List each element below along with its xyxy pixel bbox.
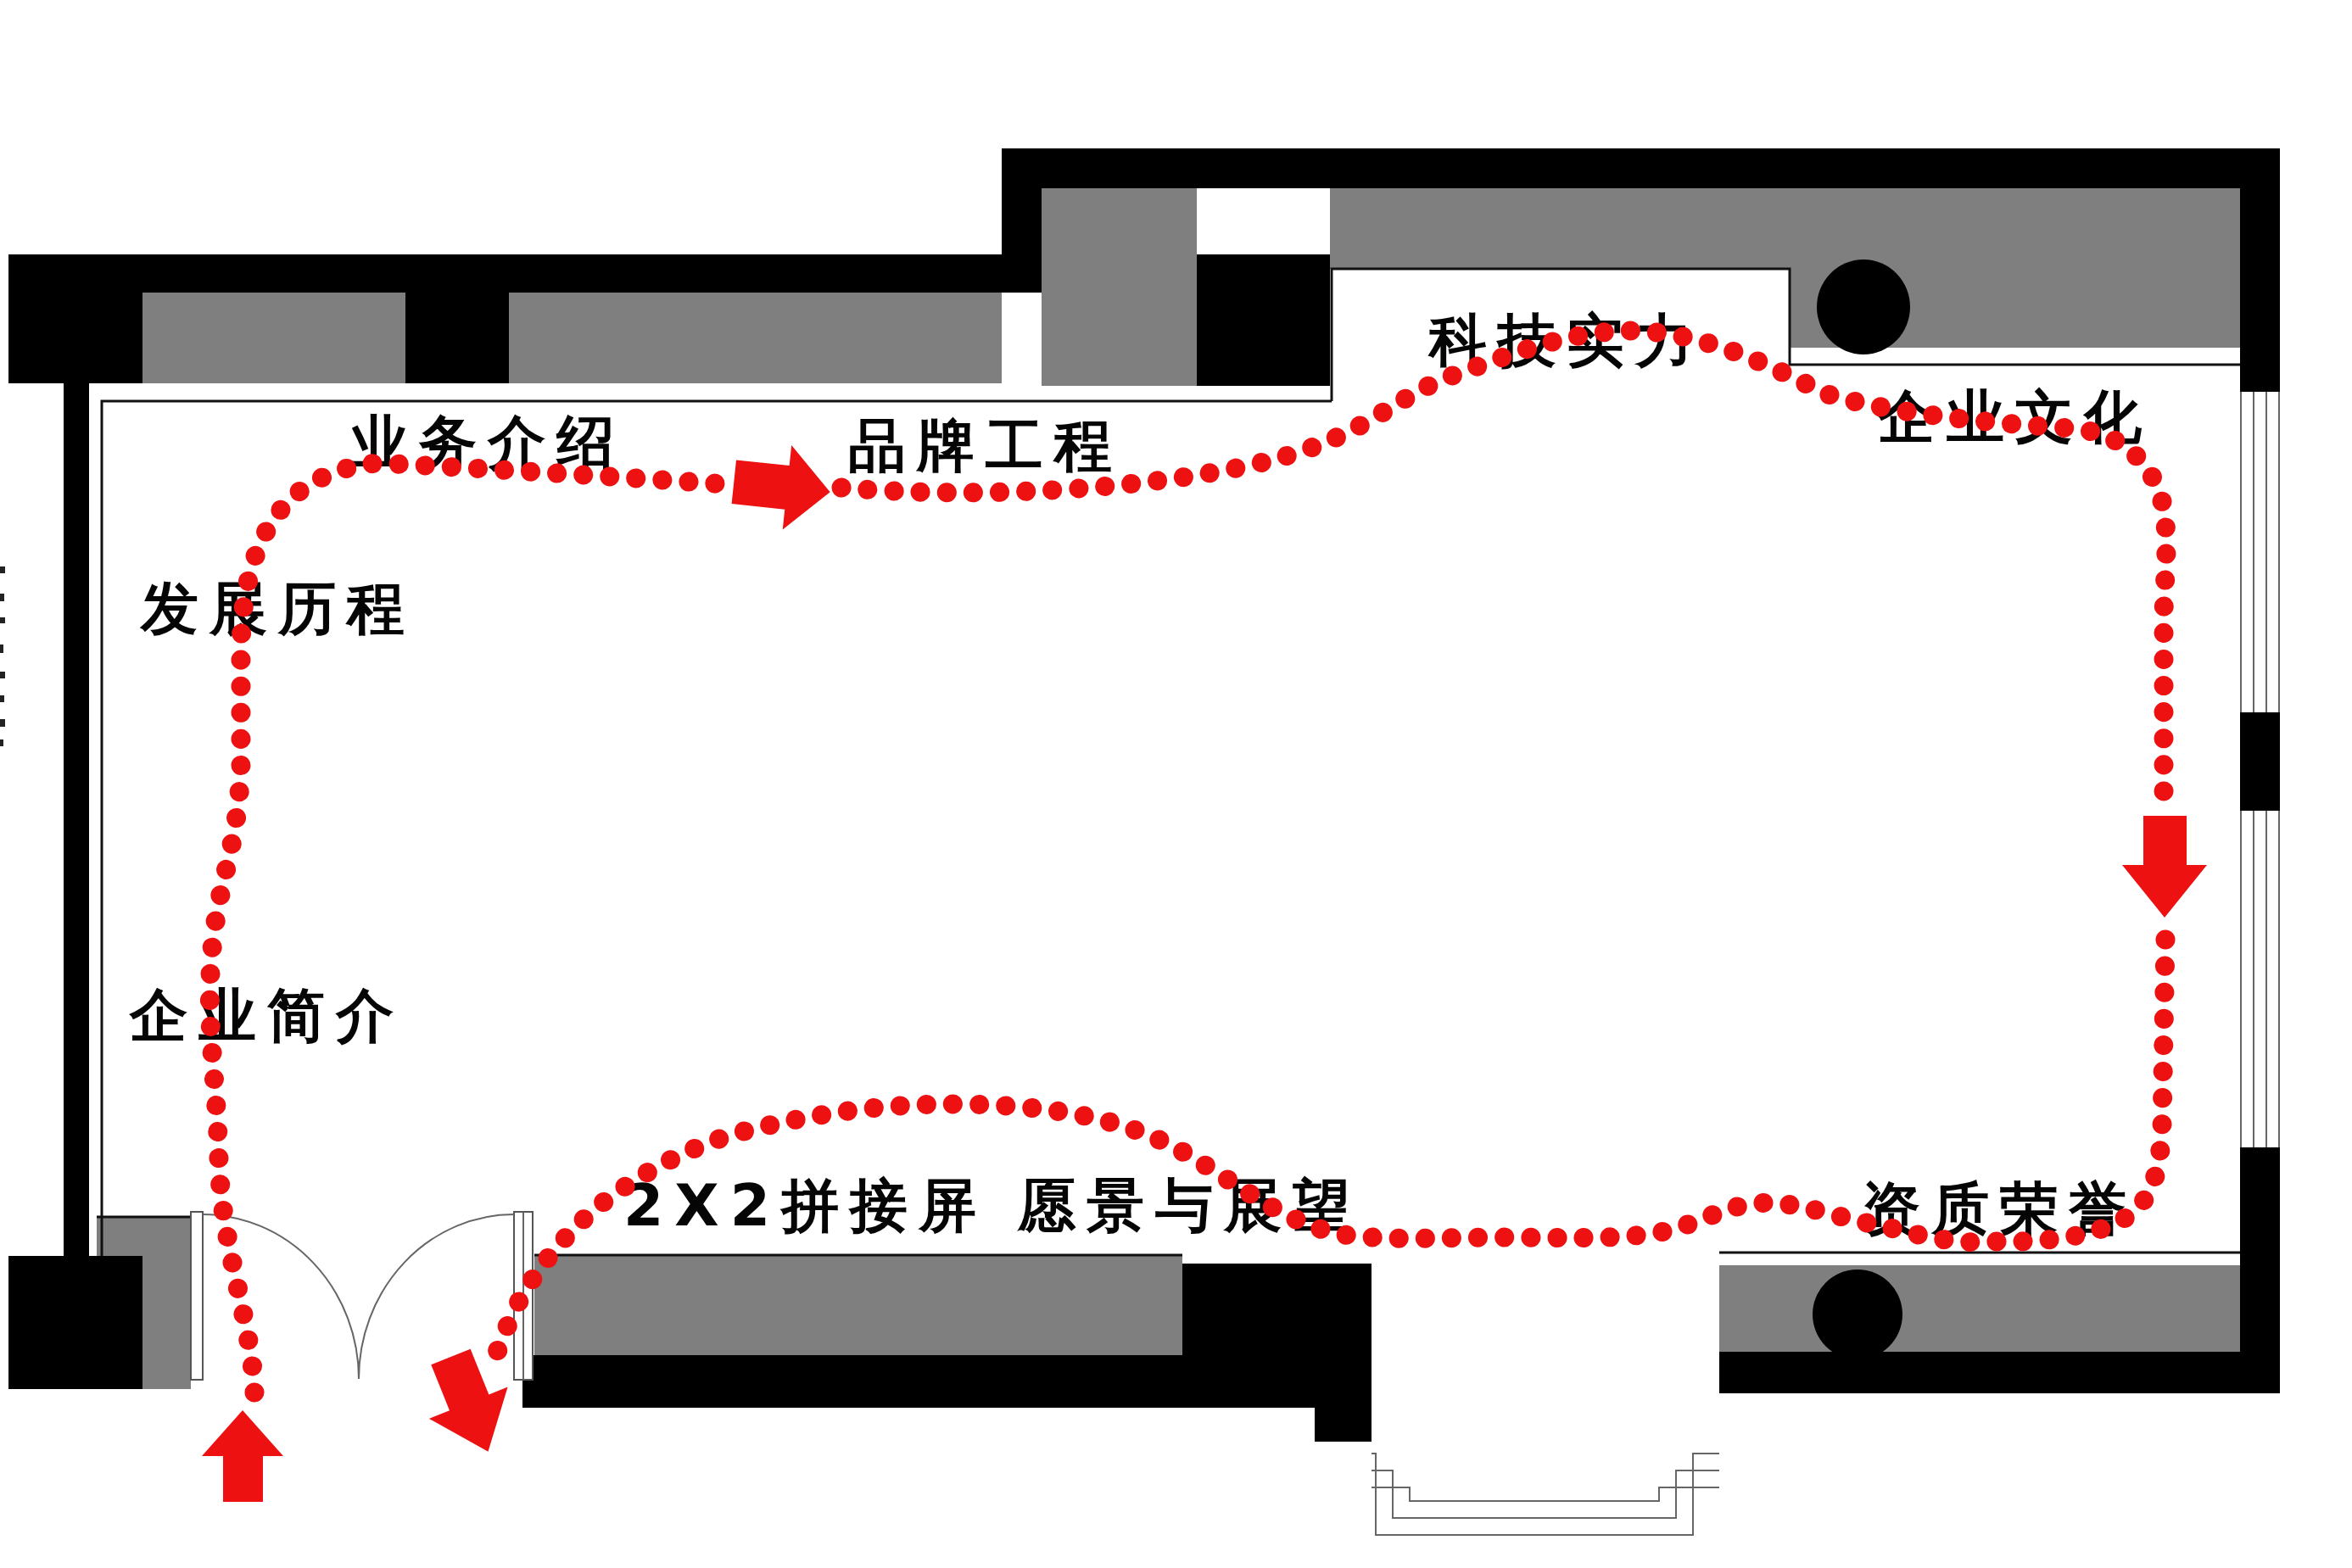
wall-top-right-band xyxy=(1002,148,2280,188)
window-band-lower xyxy=(2241,811,2279,1147)
door-leaf-left xyxy=(191,1212,203,1380)
display-panel-top-left-2 xyxy=(509,293,1002,383)
wall-top-left-band xyxy=(8,254,1042,293)
wall-top-divider-block xyxy=(405,254,509,383)
wall-bottom-left-corner-block xyxy=(8,1256,142,1389)
door-swing-arc-left xyxy=(203,1214,359,1379)
zone-label-business-intro: 业务介绍 xyxy=(350,412,625,473)
interior-boundary-left xyxy=(102,401,1332,1256)
wall-bottom-middle-band xyxy=(522,1355,1182,1408)
wall-bottom-step-block xyxy=(1315,1301,1372,1442)
door-swing-arc-right xyxy=(359,1214,514,1379)
display-panel-bottom-right xyxy=(1719,1265,2240,1352)
zone-label-development-history: 发展历程 xyxy=(141,578,416,639)
floor-plan-canvas: 业务介绍 品牌工程 科技实力 企业文化 发展历程 企业简介 2X2拼接屏 愿景与… xyxy=(0,0,2352,1568)
vestibule-recess xyxy=(1372,1454,1719,1535)
wall-alcove-divider-block xyxy=(1197,254,1330,386)
display-panel-above-alcove xyxy=(1330,188,2240,269)
display-panel-step xyxy=(1042,188,1197,386)
display-panel-bottom-middle xyxy=(534,1255,1182,1355)
window-band-upper xyxy=(2241,392,2279,712)
structural-column-top xyxy=(1817,259,1910,354)
zone-label-company-profile: 企业简介 xyxy=(130,985,405,1046)
zone-label-corporate-culture: 企业文化 xyxy=(1878,387,2153,448)
wall-right-mid-block xyxy=(2240,712,2280,811)
structural-column-bottom xyxy=(1813,1269,1902,1359)
zone-label-splicing-screen: 2X2拼接屏 xyxy=(623,1175,987,1236)
zone-label-vision-outlook: 愿景与展望 xyxy=(1018,1175,1361,1236)
exit-down-arrow-icon xyxy=(411,1342,528,1468)
edge-clipped-text-marks xyxy=(0,566,5,746)
display-panel-top-left-1 xyxy=(142,293,405,383)
zone-label-tech-strength: 科技实力 xyxy=(1429,310,1704,371)
zone-label-qualification-honor: 资质荣誉 xyxy=(1863,1179,2137,1240)
flow-down-arrow-icon xyxy=(2122,816,2207,918)
wall-bottom-right-band xyxy=(1719,1352,2280,1393)
wall-left-bar xyxy=(64,383,89,1256)
flow-right-arrow-icon xyxy=(729,440,835,534)
wall-right-top xyxy=(2240,148,2280,392)
zone-label-brand-project: 品牌工程 xyxy=(848,416,1123,477)
entry-up-arrow-icon xyxy=(202,1410,283,1502)
wall-top-left-corner-block xyxy=(8,254,142,383)
